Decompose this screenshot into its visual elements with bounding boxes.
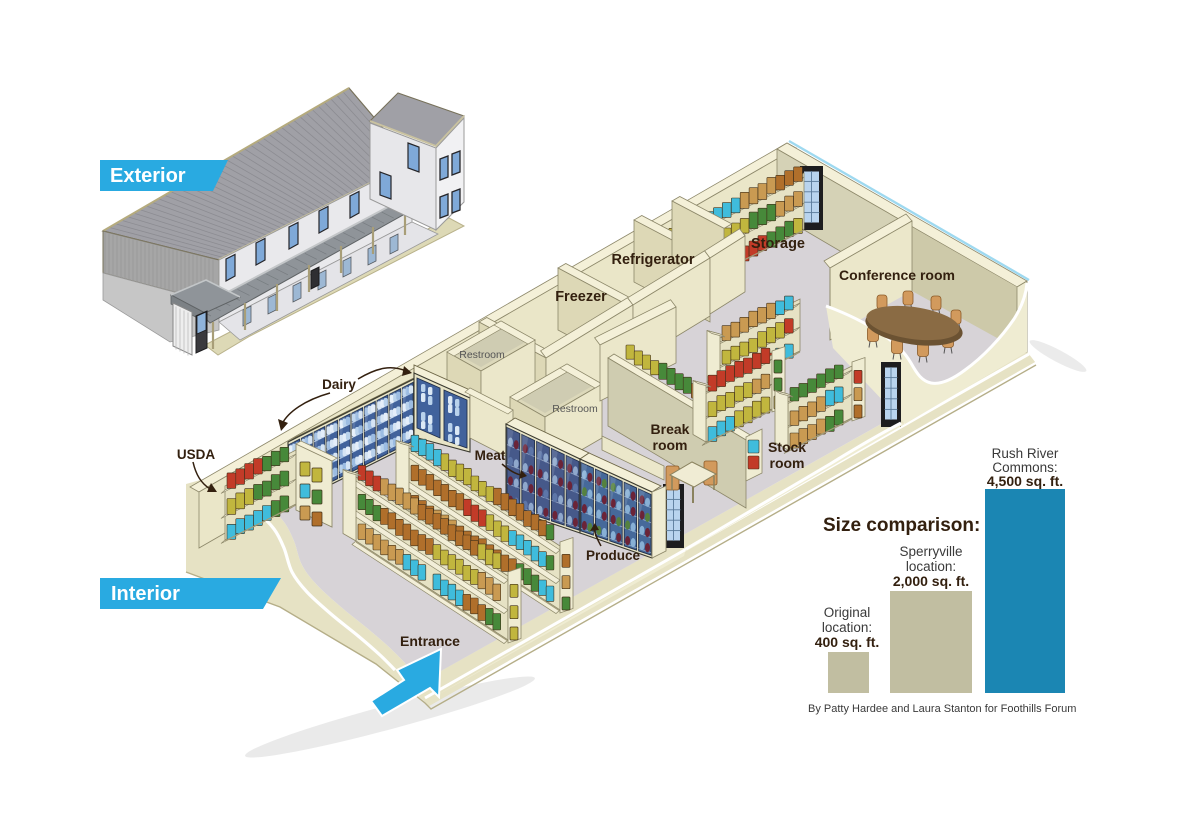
svg-text:Freezer: Freezer: [555, 289, 607, 305]
svg-text:Dairy: Dairy: [322, 377, 356, 392]
svg-text:4,500 sq. ft.: 4,500 sq. ft.: [987, 473, 1063, 489]
svg-text:Refrigerator: Refrigerator: [612, 252, 695, 268]
svg-text:Exterior: Exterior: [110, 165, 186, 187]
svg-text:room: room: [770, 455, 805, 471]
svg-text:Storage: Storage: [751, 236, 805, 252]
svg-text:By Patty Hardee and Laura Stan: By Patty Hardee and Laura Stanton for Fo…: [808, 703, 1076, 715]
svg-text:400 sq. ft.: 400 sq. ft.: [815, 634, 880, 650]
svg-text:Meat: Meat: [475, 448, 506, 463]
svg-text:Stock: Stock: [768, 439, 806, 455]
svg-text:Restroom: Restroom: [552, 403, 598, 415]
svg-text:location:: location:: [822, 620, 872, 635]
svg-text:Restroom: Restroom: [459, 349, 505, 361]
svg-text:Rush River: Rush River: [992, 446, 1059, 461]
svg-text:Entrance: Entrance: [400, 633, 460, 649]
svg-text:Size comparison:: Size comparison:: [823, 515, 980, 536]
svg-text:Break: Break: [651, 421, 690, 437]
svg-text:Produce: Produce: [586, 548, 641, 563]
svg-text:Sperryville: Sperryville: [899, 544, 962, 559]
svg-text:Original: Original: [824, 605, 871, 620]
svg-text:2,000 sq. ft.: 2,000 sq. ft.: [893, 573, 969, 589]
svg-text:Interior: Interior: [111, 583, 180, 605]
svg-text:Conference room: Conference room: [839, 267, 955, 283]
svg-text:room: room: [653, 437, 688, 453]
svg-text:USDA: USDA: [177, 447, 216, 462]
svg-text:location:: location:: [906, 559, 956, 574]
